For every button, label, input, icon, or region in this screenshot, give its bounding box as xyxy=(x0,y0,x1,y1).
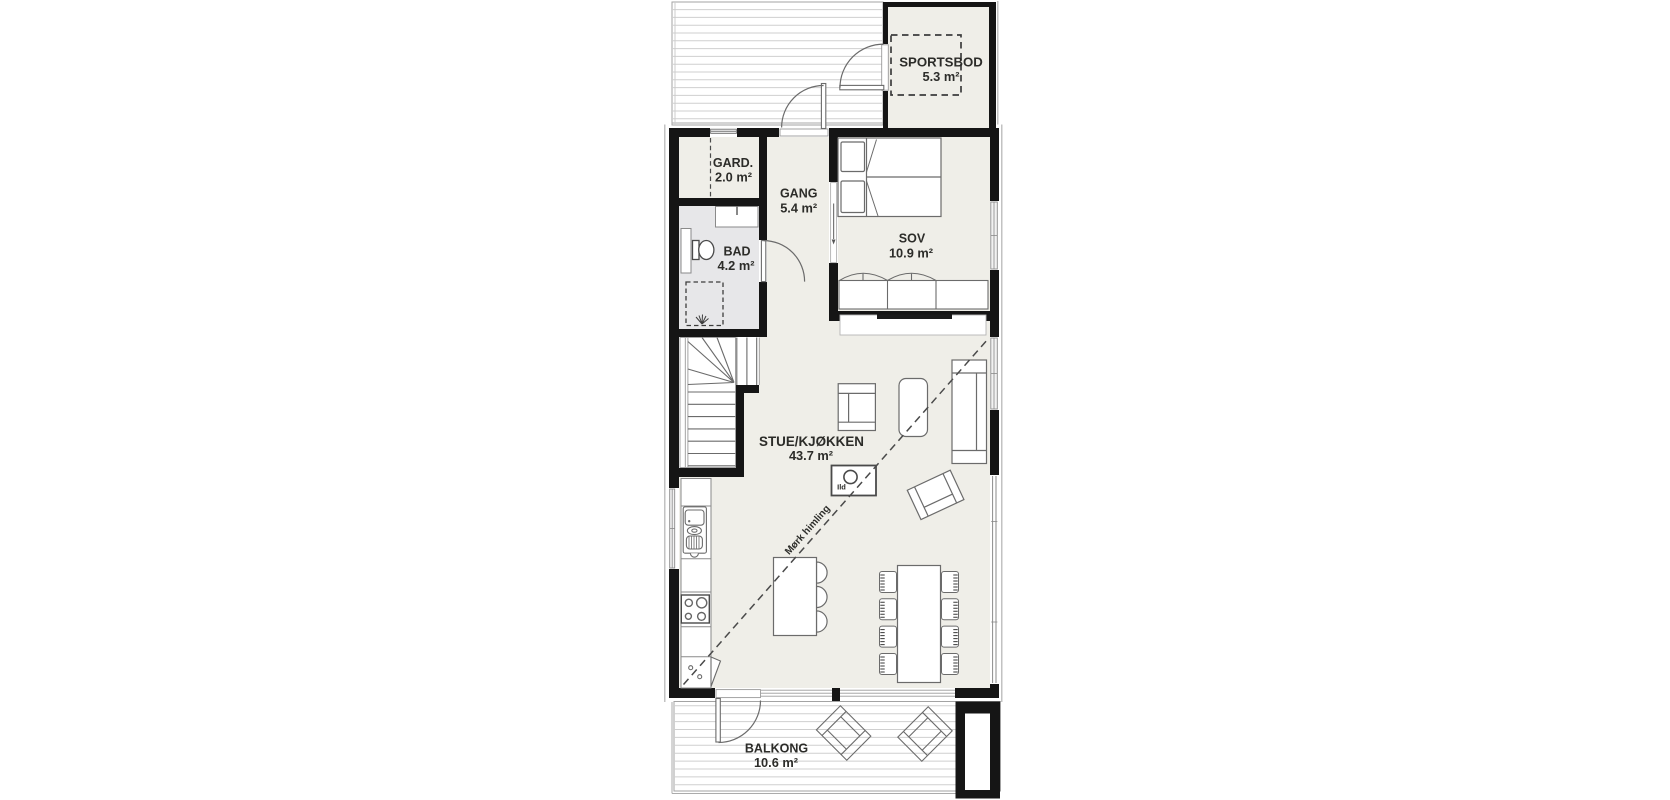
svg-text:GANG: GANG xyxy=(780,186,818,200)
svg-text:BAD: BAD xyxy=(723,245,750,259)
svg-text:43.7 m²: 43.7 m² xyxy=(789,448,833,463)
svg-text:BALKONG: BALKONG xyxy=(745,742,808,756)
svg-text:STUE/KJØKKEN: STUE/KJØKKEN xyxy=(759,434,864,449)
svg-text:5.4 m²: 5.4 m² xyxy=(780,200,817,215)
svg-text:2.0 m²: 2.0 m² xyxy=(715,170,752,185)
svg-text:SOV: SOV xyxy=(899,231,926,245)
svg-text:GARD.: GARD. xyxy=(713,156,753,170)
svg-text:Ild: Ild xyxy=(837,483,846,492)
svg-text:5.3 m²: 5.3 m² xyxy=(923,69,960,84)
svg-text:4.2 m²: 4.2 m² xyxy=(718,258,755,273)
svg-text:10.9 m²: 10.9 m² xyxy=(889,245,933,260)
svg-text:SPORTSBOD: SPORTSBOD xyxy=(899,55,983,70)
svg-text:10.6 m²: 10.6 m² xyxy=(754,755,798,770)
